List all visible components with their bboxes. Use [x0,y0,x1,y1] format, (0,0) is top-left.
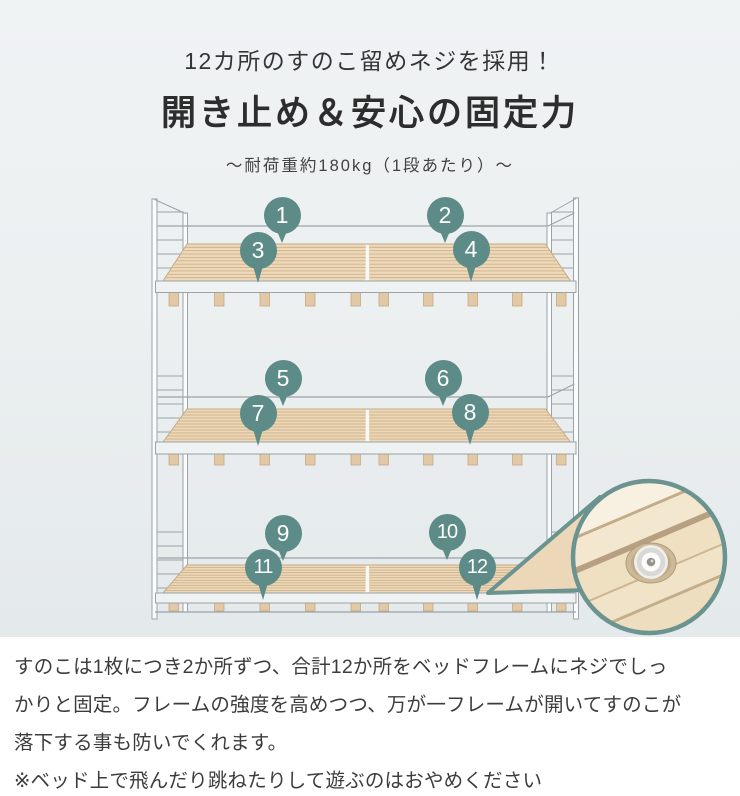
marker-tail [472,583,482,600]
marker-tail [277,231,287,243]
marker-tail [278,394,288,406]
description-line-2: かりと固定。フレームの強度を高めつつ、万が一フレームが開いてすのこが [14,686,726,724]
marker-number: 6 [437,367,450,390]
header: 12カ所のすのこ留めネジを採用！ 開き止め＆安心の固定力 〜耐荷重約180kg（… [0,0,740,176]
screw-marker-11: 11 [245,549,282,586]
description-panel: すのこは1枚につき2か所ずつ、合計12か所をベッドフレームにネジでしっ かりと固… [0,637,740,796]
marker-tail [442,548,452,560]
screw-marker-7: 7 [240,395,277,432]
screw-marker-3: 3 [240,232,277,269]
marker-number: 2 [439,204,452,227]
warning-note: ※ベッド上で飛んだり跳ねたりして遊ぶのはおやめください [14,762,726,796]
marker-number: 9 [277,522,290,545]
marker-tail [465,428,475,445]
marker-number: 12 [467,557,487,577]
screw-marker-1: 1 [264,197,301,234]
description-line-3: 落下する事も防いでくれます。 [14,724,726,762]
description-line-1: すのこは1枚につき2か所ずつ、合計12か所をベッドフレームにネジでしっ [14,648,726,686]
marker-tail [466,265,476,282]
marker-number: 4 [465,238,478,261]
marker-number: 10 [437,522,457,542]
screw-marker-4: 4 [453,231,490,268]
marker-number: 1 [276,204,289,227]
screw-marker-9: 9 [265,515,302,552]
marker-number: 7 [252,402,265,425]
marker-number: 3 [252,239,265,262]
header-small-title: 12カ所のすのこ留めネジを採用！ [0,42,740,76]
marker-tail [438,394,448,406]
marker-tail [440,231,450,243]
marker-number: 8 [464,401,477,424]
marker-tail [258,583,268,600]
page-title: 開き止め＆安心の固定力 [0,85,740,136]
marker-number: 11 [254,557,273,577]
screw-marker-12: 12 [459,549,496,586]
marker-tail [253,429,263,446]
product-infographic: 123456789101112 12カ所のすのこ留めネジを採用！ 開き止め＆安心… [0,0,740,796]
load-capacity-note: 〜耐荷重約180kg（1段あたり）〜 [0,152,740,176]
screw-marker-8: 8 [452,394,489,431]
marker-tail [253,266,263,283]
marker-number: 5 [277,367,290,390]
screw-marker-6: 6 [425,360,462,397]
screw-marker-10: 10 [429,514,466,551]
screw-marker-5: 5 [265,360,302,397]
screw-marker-2: 2 [427,197,464,234]
